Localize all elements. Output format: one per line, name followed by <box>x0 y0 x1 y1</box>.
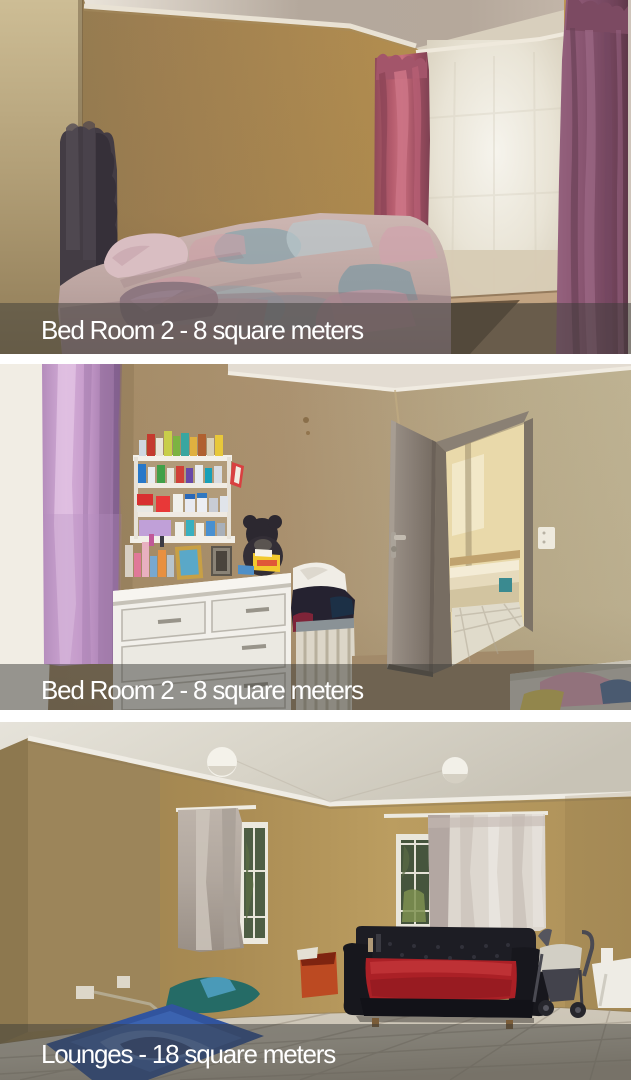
svg-text:Lounges - 18 square meters: Lounges - 18 square meters <box>41 1039 336 1069</box>
svg-text:Bed Room 2 - 8 square meters: Bed Room 2 - 8 square meters <box>41 675 364 705</box>
svg-text:Bed Room 2 - 8 square meters: Bed Room 2 - 8 square meters <box>41 315 364 345</box>
